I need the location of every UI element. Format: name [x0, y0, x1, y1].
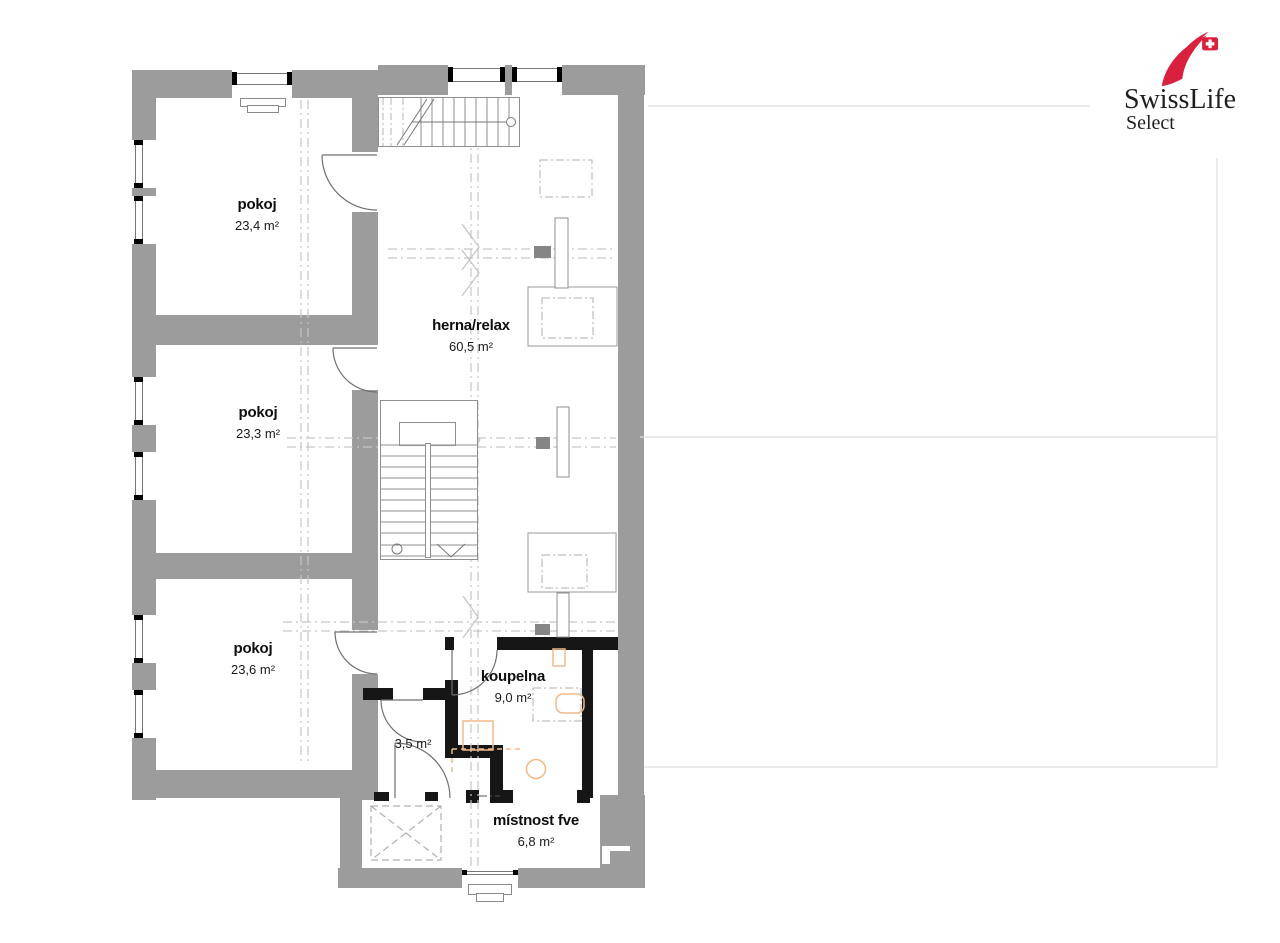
floor-plan: pokoj 23,4 m² pokoj 23,3 m² pokoj 23,6 m… [0, 0, 1280, 943]
roof-windows [528, 160, 617, 721]
room-name: herna/relax [432, 317, 510, 334]
room-label-small-hall: 3,5 m² [395, 731, 432, 751]
room-area: 23,4 m² [235, 218, 279, 233]
room-label-pokoj-top: pokoj 23,4 m² [235, 196, 279, 233]
frame-lines [640, 106, 1217, 767]
room-label-pokoj-middle: pokoj 23,3 m² [236, 404, 280, 441]
room-area: 6,8 m² [493, 834, 579, 849]
room-area: 23,3 m² [236, 426, 280, 441]
room-name: pokoj [231, 640, 275, 657]
room-label-mistnost-fve: místnost fve 6,8 m² [493, 812, 579, 849]
floor-plan-linework [0, 0, 1280, 943]
room-label-koupelna: koupelna 9,0 m² [481, 668, 545, 705]
room-area: 9,0 m² [481, 690, 545, 705]
room-area: 23,6 m² [231, 662, 275, 677]
stairs-main [381, 401, 478, 560]
room-name: koupelna [481, 668, 545, 685]
room-area: 3,5 m² [395, 736, 432, 751]
room-area: 60,5 m² [432, 339, 510, 354]
room-label-herna-relax: herna/relax 60,5 m² [432, 317, 510, 354]
swisslife-swoosh-icon [1150, 26, 1226, 88]
room-name: pokoj [236, 404, 280, 421]
room-label-pokoj-bottom: pokoj 23,6 m² [231, 640, 275, 677]
room-name: pokoj [235, 196, 279, 213]
shaft-cross [371, 806, 441, 860]
room-name: místnost fve [493, 812, 579, 829]
logo-sub-text: Select [1126, 112, 1175, 135]
stairs-top [379, 98, 520, 147]
